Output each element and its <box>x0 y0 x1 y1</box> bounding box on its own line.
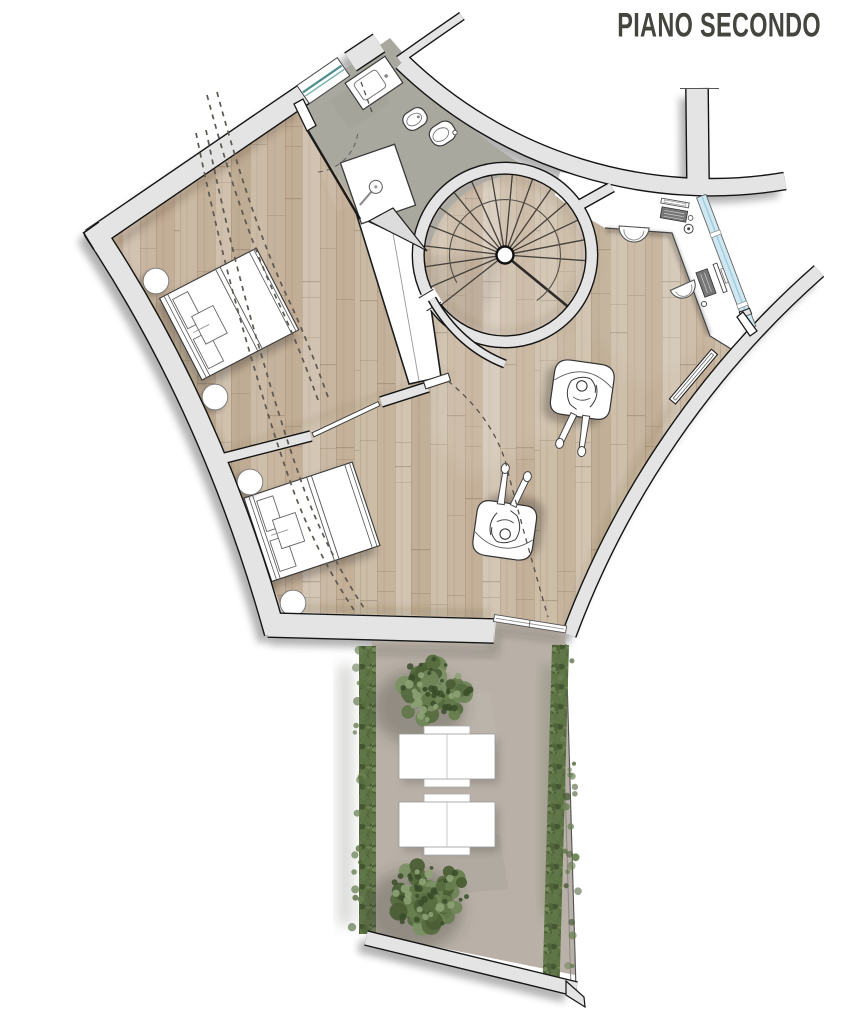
svg-text:PIANO SECONDO: PIANO SECONDO <box>617 7 821 44</box>
